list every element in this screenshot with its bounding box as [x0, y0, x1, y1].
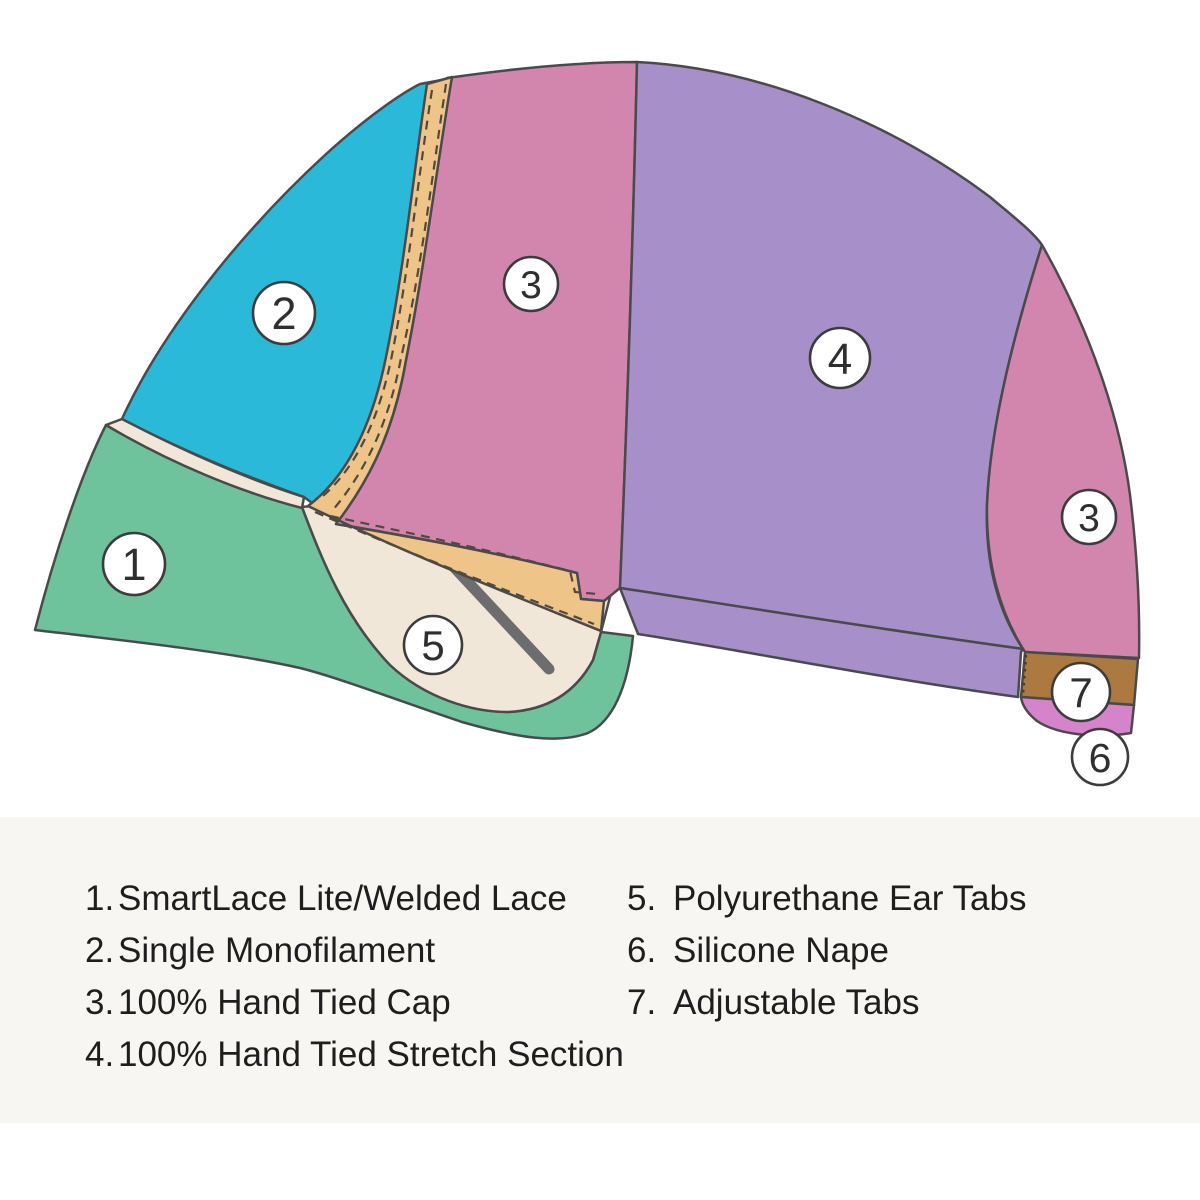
marker-5: 5 — [404, 616, 462, 674]
legend-item-number: 7. — [627, 977, 673, 1029]
legend-item: 5.Polyurethane Ear Tabs — [627, 873, 1200, 925]
legend-item-label: Polyurethane Ear Tabs — [673, 873, 1026, 925]
legend-item-label: 100% Hand Tied Cap — [118, 977, 451, 1029]
legend-item: 3.100% Hand Tied Cap — [85, 977, 627, 1029]
legend-item-number: 1. — [85, 873, 118, 925]
legend-item: 1.SmartLace Lite/Welded Lace — [85, 873, 627, 925]
legend-item-label: 100% Hand Tied Stretch Section — [118, 1029, 624, 1081]
legend-item-number: 5. — [627, 873, 673, 925]
legend-column-left: 1.SmartLace Lite/Welded Lace2.Single Mon… — [0, 873, 627, 1123]
legend-item-number: 6. — [627, 925, 673, 977]
legend-item-number: 4. — [85, 1029, 118, 1081]
marker-number: 3 — [1078, 497, 1100, 540]
marker-number: 3 — [520, 264, 542, 307]
legend-item-number: 3. — [85, 977, 118, 1029]
marker-number: 7 — [1069, 669, 1092, 716]
marker-6: 6 — [1072, 729, 1128, 785]
legend-item-label: Adjustable Tabs — [673, 977, 919, 1029]
marker-3: 3 — [504, 257, 558, 311]
marker-number: 6 — [1089, 735, 1112, 781]
legend-item-number: 2. — [85, 925, 118, 977]
marker-3: 3 — [1062, 490, 1116, 544]
legend-column-right: 5.Polyurethane Ear Tabs6.Silicone Nape7.… — [627, 873, 1200, 1123]
footer-space — [0, 1123, 1200, 1200]
legend-item-label: Silicone Nape — [673, 925, 889, 977]
legend: 1.SmartLace Lite/Welded Lace2.Single Mon… — [0, 817, 1200, 1123]
legend-item: 6.Silicone Nape — [627, 925, 1200, 977]
legend-item: 7.Adjustable Tabs — [627, 977, 1200, 1029]
marker-number: 2 — [271, 288, 296, 339]
legend-item-label: SmartLace Lite/Welded Lace — [118, 873, 567, 925]
marker-2: 2 — [253, 282, 315, 344]
legend-item: 4.100% Hand Tied Stretch Section — [85, 1029, 627, 1081]
marker-7: 7 — [1052, 663, 1110, 721]
legend-item-label: Single Monofilament — [118, 925, 435, 977]
marker-1: 1 — [103, 533, 165, 595]
marker-number: 4 — [828, 335, 852, 384]
marker-number: 1 — [121, 539, 146, 590]
wig-cap-construction-page: 12343576 1.SmartLace Lite/Welded Lace2.S… — [0, 0, 1200, 1200]
legend-item: 2.Single Monofilament — [85, 925, 627, 977]
marker-number: 5 — [421, 622, 444, 669]
wig-cap-diagram: 12343576 — [0, 0, 1200, 817]
marker-4: 4 — [810, 328, 870, 388]
wig-cap-diagram-svg: 12343576 — [0, 0, 1200, 817]
